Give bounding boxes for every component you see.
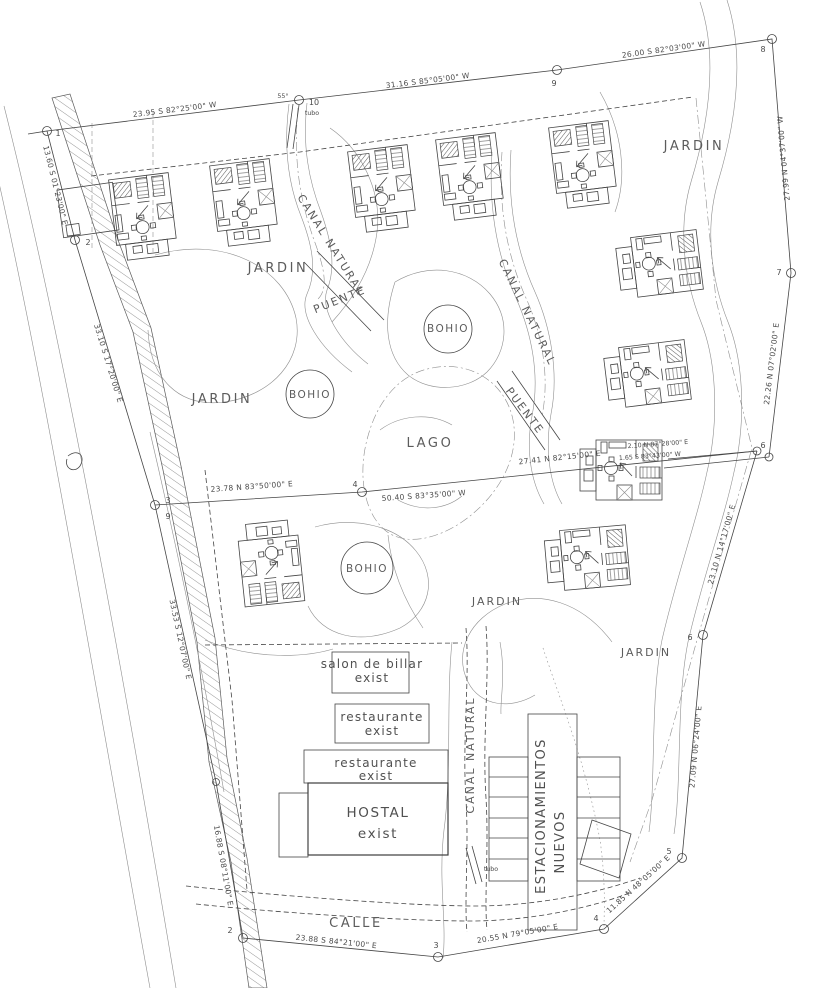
site-plan-drawing: JARDIN JARDIN JARDIN JARDIN JARDIN LAGO …	[0, 0, 828, 988]
marker-number: 4	[352, 480, 357, 489]
cabin-unit	[237, 519, 305, 607]
building-label: salon de billar	[321, 657, 423, 671]
canal-bank	[500, 642, 503, 714]
parking-stalls-right	[577, 757, 620, 881]
area-label-jardin: JARDIN	[191, 392, 253, 407]
tube-pipe	[287, 104, 299, 149]
marker-number: 2	[85, 238, 90, 247]
area-label-jardin: JARDIN	[663, 139, 725, 154]
calle-dashed	[196, 892, 632, 921]
canal-dashed-bank	[485, 626, 487, 930]
area-label-calle: CALLE	[329, 916, 383, 931]
labels: JARDIN JARDIN JARDIN JARDIN JARDIN LAGO …	[41, 39, 792, 950]
bearing-label: 50.40 S 83°35'00" W	[381, 488, 466, 503]
bohio-label: BOHIO	[289, 389, 331, 401]
bohio-label: BOHIO	[346, 563, 388, 575]
area-label-lago: LAGO	[407, 436, 454, 451]
canal-natural-label: CANAL NATURAL	[496, 257, 559, 368]
canal-bank	[305, 103, 368, 364]
area-label-jardin: JARDIN	[471, 595, 522, 608]
note-angle: 55°	[277, 92, 288, 100]
marker-number: 6	[687, 633, 692, 642]
bearing-label: 26.00 S 82°03'00" W	[621, 39, 706, 60]
marker-number: 6	[760, 441, 765, 450]
bearing-label: 23.95 S 82°25'00" W	[132, 100, 217, 119]
building-label: exist	[355, 671, 390, 685]
contour-line	[308, 523, 429, 637]
building-label: restaurante	[340, 710, 423, 724]
parking-stalls-left	[489, 757, 528, 881]
tube-pipe	[466, 846, 482, 884]
bearing-label: 33.10 S 17°20'00" E	[92, 323, 124, 404]
note-tubo: tubo	[305, 110, 319, 117]
area-label-jardin: JARDIN	[247, 261, 309, 276]
bearing-label: 31.16 S 85°05'00" W	[385, 71, 470, 90]
cabin-unit	[549, 121, 619, 210]
contour-line	[205, 640, 333, 655]
parking-label: ESTACIONAMIENTOS	[534, 738, 549, 894]
canal-natural-label: CANAL NATURAL	[464, 696, 477, 813]
marker-number: 2	[227, 926, 232, 935]
marker-number: 9	[165, 512, 170, 521]
bearing-label: 13.60 S 01°23'00" E	[41, 145, 70, 226]
canal-bank	[442, 642, 452, 958]
marker-number: 5	[666, 847, 671, 856]
marker-number: 9	[551, 79, 556, 88]
building-label: HOSTAL	[347, 805, 410, 821]
bearing-label: 11.85 N 48°05'00" E	[605, 853, 672, 915]
plant-curl	[66, 453, 82, 470]
marker-number: 8	[760, 45, 765, 54]
bearing-label: 27.09 N 06°24'00" E	[687, 705, 703, 788]
bearing-label: 22.26 N 07°02'00" E	[762, 322, 781, 405]
marker-number: 10	[309, 98, 319, 107]
contour-line	[463, 598, 612, 703]
marker-number: 7	[776, 268, 781, 277]
parking-kiosk	[580, 820, 631, 878]
stream-line	[674, 0, 742, 834]
lake-outline	[363, 366, 515, 539]
building-label: exist	[359, 769, 394, 783]
building-label: restaurante	[334, 756, 417, 770]
river-hatch-band	[52, 94, 267, 988]
building-label: exist	[365, 724, 400, 738]
bohio-label: BOHIO	[427, 323, 469, 335]
bearing-label: 27.41 N 82°15'00" E	[518, 449, 601, 467]
marker-number: 1	[55, 129, 60, 138]
bearing-label: 23.88 S 84°21'00" E	[295, 933, 377, 950]
marker-number: 3	[433, 941, 438, 950]
parking-label: NUEVOS	[553, 810, 568, 873]
building-label: exist	[358, 826, 398, 842]
cabin-unit	[436, 133, 506, 222]
setback-dashed	[205, 643, 462, 645]
lake-shore	[380, 417, 452, 430]
parking-stall-dividers	[577, 777, 620, 859]
path-dotted	[543, 648, 604, 929]
calle-dashed	[186, 878, 640, 906]
cabin-unit	[544, 525, 631, 592]
stream-line	[649, 2, 715, 832]
marker-number: 4	[593, 914, 598, 923]
marker-number: 3	[165, 496, 170, 505]
cabin-unit	[348, 145, 418, 234]
cabin-unit	[603, 340, 692, 410]
note-tubo: tubo	[484, 866, 498, 873]
bearing-label: 27.99 N 04°37'00" W	[775, 115, 791, 201]
bearing-label: 20.55 N 79°05'00" E	[476, 922, 559, 945]
hostal-annex	[279, 793, 308, 857]
area-label-jardin: JARDIN	[620, 646, 671, 659]
site-plan-svg: JARDIN JARDIN JARDIN JARDIN JARDIN LAGO …	[0, 0, 828, 988]
bearing-label: 23.78 N 83°50'00" E	[210, 479, 293, 494]
cabin-unit	[210, 159, 280, 248]
parking-stall-dividers	[489, 777, 528, 859]
